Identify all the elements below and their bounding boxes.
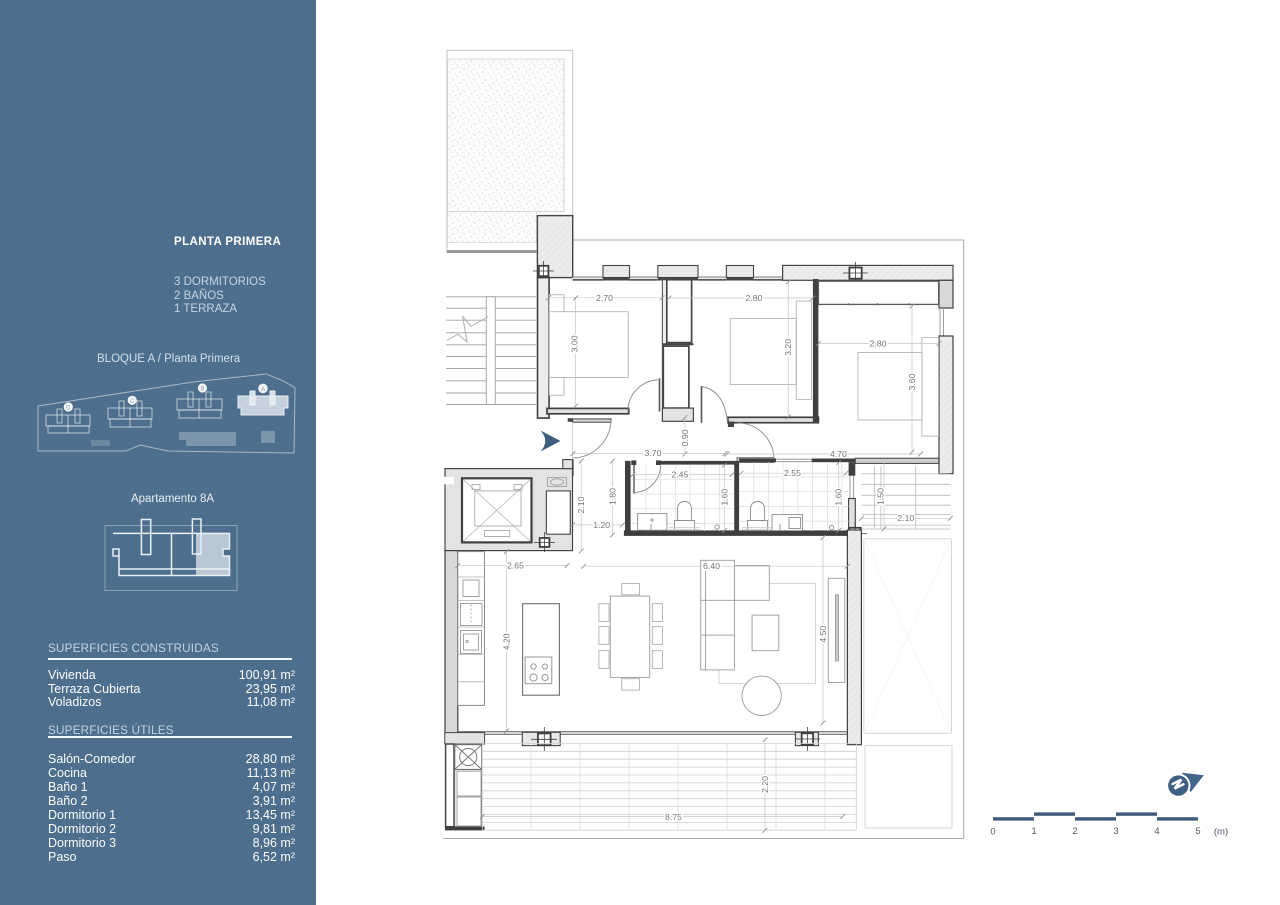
svg-text:3.00: 3.00 (570, 335, 580, 352)
svg-text:2.80: 2.80 (870, 339, 887, 349)
svg-text:1.80: 1.80 (608, 488, 618, 505)
svg-text:2.10: 2.10 (897, 513, 914, 523)
svg-text:3.60: 3.60 (907, 373, 917, 390)
svg-text:2.10: 2.10 (576, 496, 586, 513)
svg-text:2.80: 2.80 (746, 293, 763, 303)
svg-text:1.60: 1.60 (834, 489, 844, 506)
svg-text:3.20: 3.20 (783, 339, 793, 356)
svg-text:2.45: 2.45 (671, 470, 688, 480)
svg-text:4: 4 (1154, 826, 1159, 837)
svg-text:2.70: 2.70 (596, 293, 613, 303)
svg-text:5: 5 (1195, 826, 1200, 837)
svg-text:2.55: 2.55 (784, 468, 801, 478)
svg-text:2.20: 2.20 (760, 776, 770, 793)
svg-text:(m): (m) (1214, 827, 1228, 838)
svg-text:8.75: 8.75 (665, 812, 682, 822)
svg-text:4.70: 4.70 (830, 449, 847, 459)
svg-text:4.20: 4.20 (502, 633, 512, 650)
svg-text:4.50: 4.50 (818, 626, 828, 643)
svg-text:3: 3 (1113, 826, 1118, 837)
svg-text:6.40: 6.40 (703, 561, 720, 571)
svg-text:2: 2 (1072, 826, 1077, 837)
svg-text:1.20: 1.20 (593, 520, 610, 530)
svg-text:3.70: 3.70 (644, 448, 661, 458)
svg-text:1: 1 (1031, 826, 1036, 837)
svg-text:1.50: 1.50 (876, 488, 886, 505)
svg-text:1.60: 1.60 (720, 489, 730, 506)
svg-text:2.65: 2.65 (507, 561, 524, 571)
svg-text:0: 0 (990, 827, 995, 838)
svg-text:0.90: 0.90 (680, 429, 690, 446)
